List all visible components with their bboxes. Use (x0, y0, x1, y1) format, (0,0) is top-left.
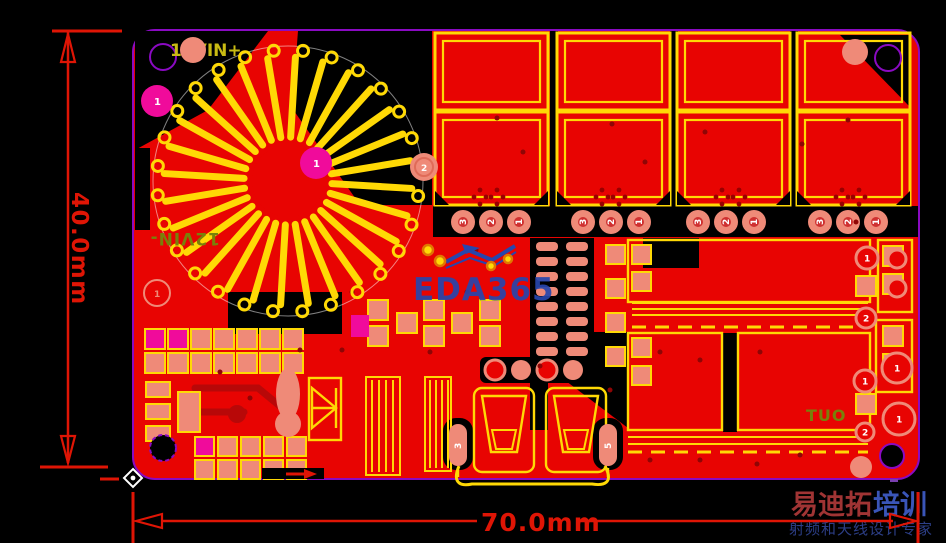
svg-text:2: 2 (722, 219, 732, 225)
brand-watermark: 易迪拓 培训 射频和天线设计专家 (789, 479, 933, 538)
svg-text:2: 2 (844, 219, 854, 225)
oval-pad-3-label: 3 (454, 443, 464, 449)
board-width-label: 70.0mm (481, 508, 601, 537)
svg-text:3: 3 (579, 219, 589, 225)
svg-text:1: 1 (896, 416, 902, 426)
svg-text:1: 1 (894, 365, 900, 375)
mounting-hole-icon (880, 444, 904, 468)
svg-text:1: 1 (750, 219, 760, 225)
mounting-hole-icon (150, 435, 176, 461)
svg-text:1: 1 (862, 378, 868, 388)
silk-output-mirrored: TUO (806, 406, 847, 425)
origin-marker-icon (100, 469, 142, 487)
input-pos-pad (180, 37, 206, 63)
brand-title-red: 易迪拓 (791, 490, 872, 521)
eda365-watermark-text: EDA365 (413, 272, 555, 308)
test-point-blob (275, 368, 301, 437)
dimension-vertical: 40.0mm (40, 31, 122, 467)
svg-text:3: 3 (459, 219, 469, 225)
svg-text:3: 3 (694, 219, 704, 225)
mounting-hole-icon (875, 45, 901, 71)
svg-text:1: 1 (872, 219, 882, 225)
svg-text:2: 2 (487, 219, 497, 225)
svg-text:1: 1 (515, 219, 525, 225)
svg-text:3: 3 (816, 219, 826, 225)
pad-2-salmon: 2 (410, 153, 438, 181)
oval-pad-5-label: 5 (604, 443, 614, 449)
top-right-pad (842, 39, 868, 65)
svg-text:2: 2 (607, 219, 617, 225)
oval-pad-3: 3 (449, 424, 467, 466)
svg-text:2: 2 (862, 429, 868, 439)
svg-text:1: 1 (635, 219, 645, 225)
inductor-pad-1a: 1 (141, 85, 173, 117)
bottom-edge-arrow-icon (262, 468, 324, 479)
svg-text:2: 2 (421, 164, 427, 174)
oval-pad-5: 5 (599, 424, 617, 466)
pcb-board: 3 5 321321321321 121121 12VIN+ (133, 30, 919, 485)
board-height-label: 40.0mm (66, 192, 92, 306)
svg-text:1: 1 (154, 290, 160, 300)
pcb-viewer-canvas[interactable]: 3 5 321321321321 121121 12VIN+ (0, 0, 946, 543)
svg-text:1: 1 (313, 159, 320, 170)
svg-text:2: 2 (863, 315, 869, 325)
silk-input-neg-mirrored: 12VIN- (150, 228, 220, 248)
svg-text:1: 1 (864, 255, 870, 265)
inductor-pad-1b: 1 (300, 147, 332, 179)
svg-text:1: 1 (154, 97, 161, 108)
